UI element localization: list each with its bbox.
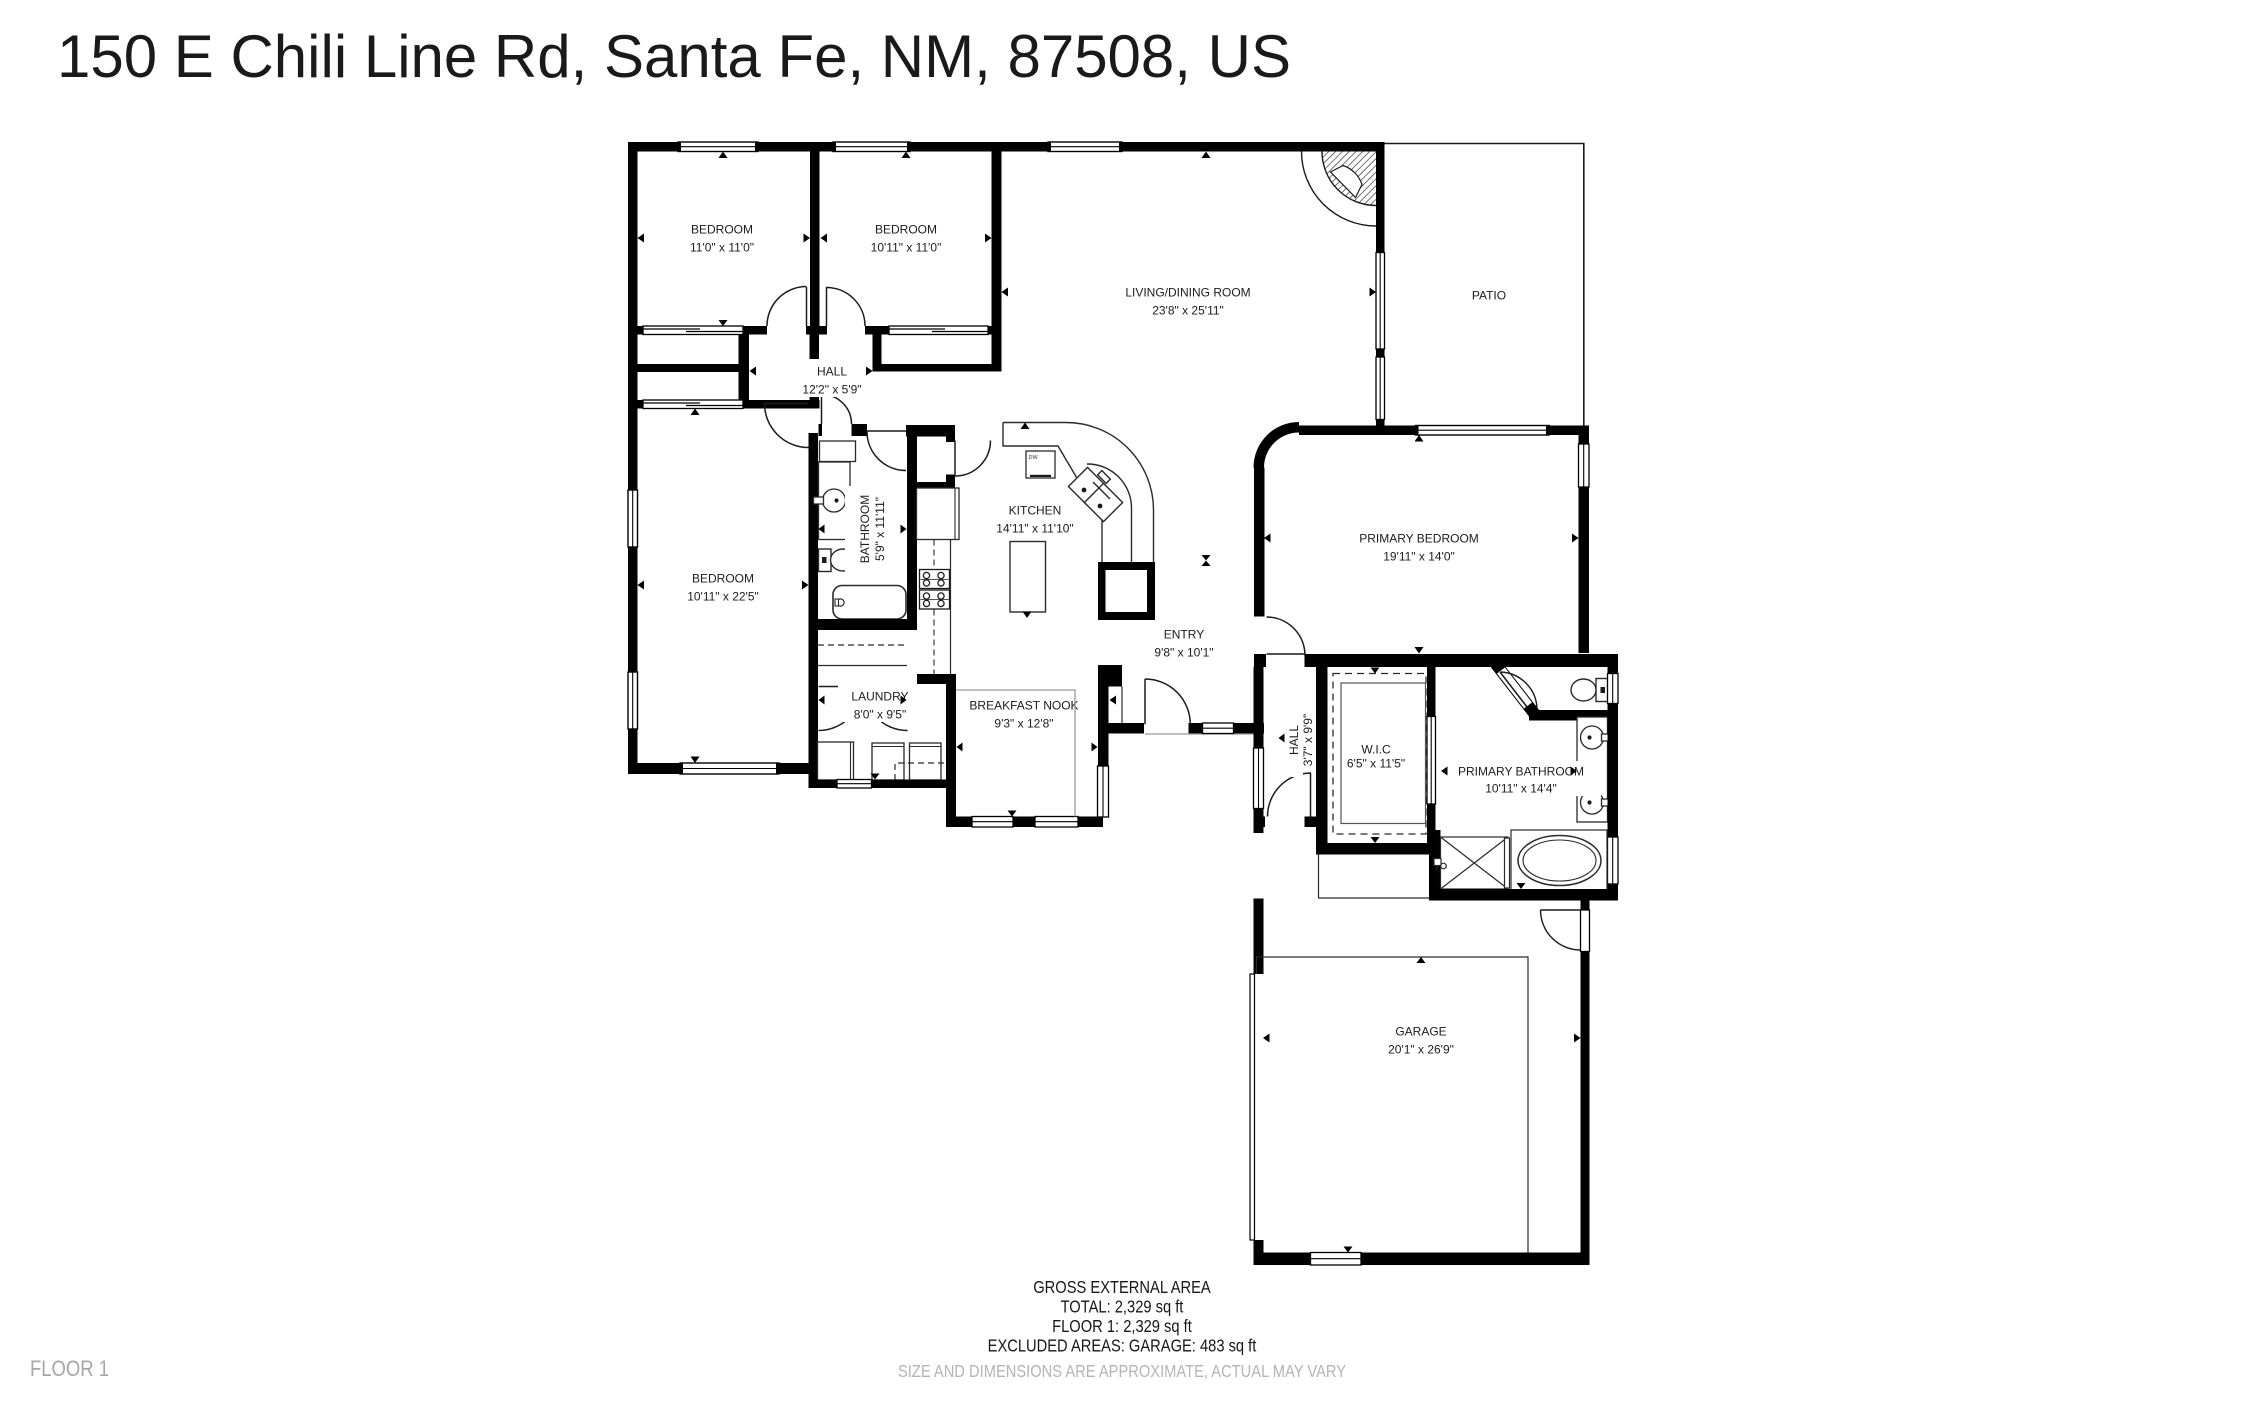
svg-text:BEDROOM: BEDROOM [875, 223, 937, 237]
svg-text:8'0" x 9'5": 8'0" x 9'5" [854, 708, 906, 722]
svg-text:EXCLUDED AREAS: GARAGE: 483 sq: EXCLUDED AREAS: GARAGE: 483 sq ft [988, 1336, 1257, 1355]
svg-text:10'11" x 11'0": 10'11" x 11'0" [871, 241, 942, 255]
svg-text:TOTAL: 2,329 sq ft: TOTAL: 2,329 sq ft [1061, 1297, 1184, 1316]
svg-text:GARAGE: GARAGE [1395, 1025, 1446, 1039]
svg-text:BATHROOM: BATHROOM [858, 495, 872, 563]
svg-text:10'11" x 22'5": 10'11" x 22'5" [687, 590, 759, 604]
svg-text:23'8" x 25'11": 23'8" x 25'11" [1152, 304, 1224, 318]
svg-text:LAUNDRY: LAUNDRY [851, 690, 908, 704]
svg-text:ENTRY: ENTRY [1164, 628, 1204, 642]
svg-text:GROSS EXTERNAL AREA: GROSS EXTERNAL AREA [1033, 1278, 1211, 1297]
svg-text:FLOOR 1: FLOOR 1 [30, 1358, 109, 1382]
svg-text:SIZE AND DIMENSIONS ARE APPROX: SIZE AND DIMENSIONS ARE APPROXIMATE, ACT… [898, 1362, 1346, 1381]
svg-text:PRIMARY BATHROOM: PRIMARY BATHROOM [1458, 765, 1584, 779]
svg-text:9'3" x 12'8": 9'3" x 12'8" [994, 717, 1053, 731]
svg-text:HALL: HALL [1287, 725, 1301, 755]
svg-text:PATIO: PATIO [1472, 289, 1506, 303]
svg-text:BEDROOM: BEDROOM [692, 572, 754, 586]
svg-text:14'11" x 11'10": 14'11" x 11'10" [996, 522, 1073, 536]
svg-text:19'11" x 14'0": 19'11" x 14'0" [1383, 550, 1455, 564]
svg-text:9'8" x 10'1": 9'8" x 10'1" [1154, 646, 1213, 660]
svg-text:5'9" x 11'11": 5'9" x 11'11" [873, 497, 887, 561]
svg-text:PRIMARY BEDROOM: PRIMARY BEDROOM [1359, 532, 1479, 546]
svg-text:10'11" x 14'4": 10'11" x 14'4" [1485, 782, 1557, 796]
svg-text:20'1" x 26'9": 20'1" x 26'9" [1388, 1043, 1454, 1057]
svg-text:BREAKFAST NOOK: BREAKFAST NOOK [969, 699, 1078, 713]
svg-text:HALL: HALL [817, 365, 847, 379]
svg-text:150 E Chili Line Rd, Santa Fe,: 150 E Chili Line Rd, Santa Fe, NM, 87508… [57, 23, 1291, 90]
svg-text:12'2" x 5'9": 12'2" x 5'9" [802, 383, 861, 397]
svg-text:3'7" x 9'9": 3'7" x 9'9" [1301, 714, 1315, 766]
svg-text:FLOOR 1: 2,329 sq ft: FLOOR 1: 2,329 sq ft [1052, 1317, 1192, 1336]
svg-text:DW: DW [1029, 455, 1039, 461]
svg-text:6'5" x 11'5": 6'5" x 11'5" [1347, 757, 1405, 771]
svg-text:W.I.C: W.I.C [1361, 743, 1391, 757]
svg-text:LIVING/DINING ROOM: LIVING/DINING ROOM [1125, 286, 1250, 300]
svg-text:11'0" x 11'0": 11'0" x 11'0" [690, 241, 754, 255]
svg-text:KITCHEN: KITCHEN [1009, 504, 1062, 518]
svg-text:BEDROOM: BEDROOM [691, 223, 753, 237]
